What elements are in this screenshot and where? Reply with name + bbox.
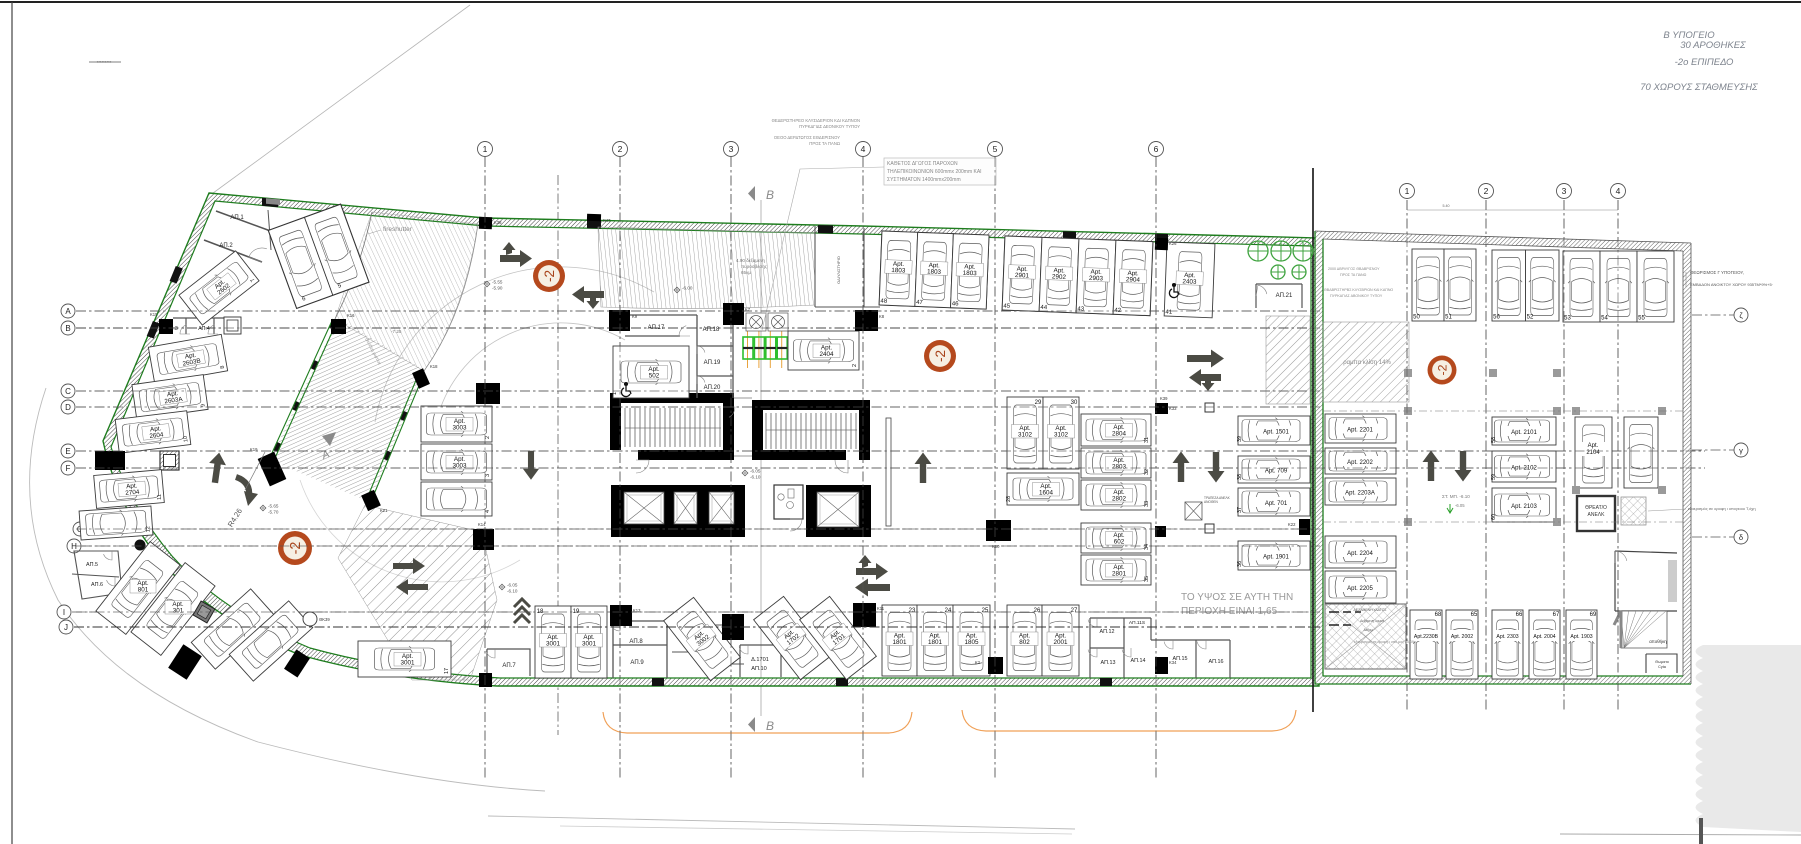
- svg-text:K21: K21: [380, 508, 388, 513]
- svg-text:-6.10: -6.10: [507, 589, 518, 594]
- svg-text:2001: 2001: [1053, 639, 1068, 646]
- svg-text:εξαερισμός σε οροφη ι υπο,μος: εξαερισμός σε οροφη ι υπο,μος 35,69: [1354, 640, 1414, 644]
- svg-text:39: 39: [1237, 436, 1243, 442]
- svg-text:ΔΕΞΑΜΕΝΗ ΥΔΑΤΟΣ: ΔΕΞΑΜΕΝΗ ΥΔΑΤΟΣ: [1354, 608, 1387, 612]
- svg-text:Δεξαμ: Δεξαμ: [1363, 628, 1372, 632]
- svg-text:δ: δ: [1739, 533, 1743, 542]
- svg-text:38: 38: [1237, 474, 1243, 480]
- svg-text:47: 47: [916, 300, 924, 306]
- svg-text:-2: -2: [288, 542, 304, 555]
- svg-text:Apt. 2202: Apt. 2202: [1347, 460, 1373, 466]
- svg-text:ΑΠ.13: ΑΠ.13: [1101, 660, 1116, 666]
- svg-text:2: 2: [852, 364, 858, 367]
- svg-text:58: 58: [1491, 437, 1497, 443]
- svg-text:2801: 2801: [1112, 571, 1127, 578]
- svg-text:2904: 2904: [1126, 276, 1141, 284]
- svg-text:48: 48: [880, 298, 888, 304]
- svg-text:K9: K9: [632, 314, 638, 319]
- svg-text:ΑΠ.1: ΑΠ.1: [230, 215, 244, 221]
- svg-text:60: 60: [1491, 514, 1497, 520]
- svg-text:B: B: [766, 719, 774, 733]
- svg-text:ΘΕΩΡΙΣΜΟΣ Γ ΥΠΟΓΕΙΟΥ,: ΘΕΩΡΙΣΜΟΣ Γ ΥΠΟΓΕΙΟΥ,: [1690, 270, 1744, 275]
- svg-text:K2: K2: [975, 660, 981, 665]
- svg-text:3102: 3102: [1054, 432, 1069, 439]
- svg-text:-2ο ΕΠΙΠΕΔΟ: -2ο ΕΠΙΠΕΔΟ: [1675, 57, 1734, 68]
- svg-text:Apt. 709: Apt. 709: [1265, 469, 1288, 475]
- svg-text:36: 36: [1237, 561, 1243, 567]
- svg-text:Apt. 1901: Apt. 1901: [1263, 555, 1289, 561]
- svg-text:Apt. 701: Apt. 701: [1265, 501, 1288, 507]
- svg-text:1: 1: [1405, 186, 1410, 196]
- svg-text:301: 301: [173, 608, 184, 615]
- svg-text:4: 4: [485, 510, 491, 513]
- svg-text:10: 10: [183, 436, 190, 443]
- svg-text:2000 ΔΒΡΛΥΓΟΣ ΘΒΔΒΡΙΣΝΟΥ: 2000 ΔΒΡΛΥΓΟΣ ΘΒΔΒΡΙΣΝΟΥ: [1328, 267, 1380, 271]
- svg-text:ΠΕΡΙΟΧΗ ΕΙΝΑΙ 1,65: ΠΕΡΙΟΧΗ ΕΙΝΑΙ 1,65: [1181, 606, 1278, 617]
- svg-text:2403: 2403: [1182, 278, 1197, 286]
- svg-text:1: 1: [612, 392, 618, 395]
- svg-text:2802: 2802: [1112, 496, 1127, 503]
- svg-text:E: E: [65, 447, 70, 456]
- svg-text:C: C: [65, 387, 71, 396]
- svg-text:6: 6: [1154, 144, 1159, 154]
- svg-text:53: 53: [1564, 316, 1571, 322]
- svg-text:K15: K15: [150, 312, 158, 317]
- svg-text:K34: K34: [1169, 660, 1177, 665]
- svg-text:Apt. 2205: Apt. 2205: [1347, 586, 1373, 592]
- svg-text:3003: 3003: [452, 463, 467, 470]
- svg-text:ΘΒΔΒΡΙΣΤΗΡΒΣ ΚΛΥΣΒΡΙΩΝ ΚΑΙ ΚΑΠ: ΘΒΔΒΡΙΣΤΗΡΒΣ ΚΛΥΣΒΡΙΩΝ ΚΑΙ ΚΑΠΝΟ: [1324, 288, 1393, 292]
- svg-text:30 ΑΡΟΘΗΚΕΣ: 30 ΑΡΟΘΗΚΕΣ: [1680, 40, 1746, 51]
- svg-text:D: D: [65, 403, 71, 412]
- svg-text:17: 17: [444, 668, 450, 674]
- svg-text:K47: K47: [603, 218, 611, 223]
- svg-text:K18: K18: [430, 364, 438, 369]
- svg-text:ΑΠ.9: ΑΠ.9: [630, 660, 644, 666]
- svg-text:44: 44: [1040, 305, 1048, 311]
- svg-text:-5.55: -5.55: [492, 280, 503, 285]
- svg-text:ΘΕΔΕΡΙΣΤΗΡΕΟ ΚΛΥΣΙΔΕΡΙΟΝ ΚΔΙ Κ: ΘΕΔΕΡΙΣΤΗΡΕΟ ΚΛΥΣΙΔΕΡΙΟΝ ΚΔΙ ΚΔΠΝΟΝ: [772, 118, 860, 123]
- svg-text:46: 46: [952, 301, 960, 307]
- svg-text:1: 1: [483, 144, 488, 154]
- svg-text:66: 66: [1516, 612, 1523, 618]
- svg-text:-2: -2: [1435, 364, 1449, 375]
- svg-text:Θωματο: Θωματο: [1655, 660, 1669, 664]
- svg-text:2404: 2404: [819, 351, 834, 358]
- svg-text:ΑΠ.8: ΑΠ.8: [629, 639, 643, 645]
- svg-text:30: 30: [1071, 400, 1078, 406]
- svg-text:51: 51: [1445, 315, 1452, 321]
- svg-text:Apt.: Apt.: [1588, 443, 1599, 449]
- svg-text:1801: 1801: [928, 639, 943, 646]
- svg-text:-5.70: -5.70: [268, 510, 279, 515]
- svg-text:24: 24: [945, 608, 952, 614]
- svg-text:ΑΠ.16: ΑΠ.16: [1209, 659, 1224, 665]
- svg-text:25: 25: [982, 608, 989, 614]
- svg-text:35: 35: [1144, 576, 1150, 582]
- svg-text:2902: 2902: [1052, 273, 1067, 281]
- svg-text:Apt. 2303: Apt. 2303: [1496, 634, 1518, 640]
- svg-text:B: B: [766, 188, 774, 202]
- svg-text:ΑΠ.6: ΑΠ.6: [91, 582, 103, 588]
- svg-text:ΑΠ.7: ΑΠ.7: [502, 663, 516, 669]
- svg-text:602: 602: [1114, 539, 1125, 546]
- svg-text:I: I: [63, 608, 65, 617]
- svg-text:ΟΔΙΥΛΙΣΤΗΡΙΟ: ΟΔΙΥΛΙΣΤΗΡΙΟ: [836, 256, 841, 284]
- svg-text:ΣΤ. ΜΠ. -6.10: ΣΤ. ΜΠ. -6.10: [1442, 494, 1470, 499]
- svg-text:23: 23: [909, 608, 916, 614]
- svg-text:A: A: [65, 307, 71, 316]
- svg-text:-2: -2: [933, 350, 948, 362]
- svg-text:3: 3: [485, 474, 491, 477]
- svg-text:*********: *********: [97, 60, 112, 65]
- svg-text:54: 54: [1601, 316, 1608, 322]
- svg-text:-2: -2: [542, 270, 557, 282]
- svg-text:26: 26: [1034, 608, 1041, 614]
- svg-text:1803: 1803: [891, 267, 906, 275]
- svg-text:Apt. 1501: Apt. 1501: [1263, 430, 1289, 436]
- svg-text:55: 55: [1638, 316, 1645, 322]
- svg-text:3001: 3001: [546, 641, 561, 648]
- svg-text:-6.05: -6.05: [750, 469, 761, 474]
- svg-text:ΑΠ.12: ΑΠ.12: [1100, 629, 1115, 635]
- svg-text:-7.25: -7.25: [391, 329, 402, 334]
- svg-text:Apt.2230Β: Apt.2230Β: [1414, 634, 1439, 640]
- svg-text:ΑΝΕΛΚ: ΑΝΕΛΚ: [1588, 512, 1606, 518]
- svg-text:52: 52: [1527, 315, 1534, 321]
- svg-text:fireshutter: fireshutter: [383, 226, 413, 233]
- svg-text:ΠΥΡΚΔΓΙΔΣ ΔΕΟΝΙΚΟΥ ΤΥΠΟΥ: ΠΥΡΚΔΓΙΔΣ ΔΕΟΝΙΚΟΥ ΤΥΠΟΥ: [799, 124, 860, 129]
- svg-text:1803: 1803: [963, 270, 978, 278]
- svg-text:43: 43: [1077, 306, 1085, 312]
- svg-text:ραμπα κλίση 14%: ραμπα κλίση 14%: [1343, 360, 1391, 366]
- svg-text:Δεξαμενη λυματ: Δεξαμενη λυματ: [1360, 619, 1385, 623]
- svg-text:γ: γ: [1739, 446, 1743, 455]
- svg-text:-6.05: -6.05: [1455, 503, 1465, 508]
- svg-text:K22: K22: [1288, 522, 1296, 527]
- svg-text:3: 3: [1562, 186, 1567, 196]
- svg-text:J: J: [64, 623, 68, 632]
- svg-text:H: H: [71, 542, 77, 551]
- svg-text:34: 34: [1144, 544, 1150, 550]
- svg-text:ΟΕΟΟ ΔΕΡΔΤΩΓΟΣ ΕΘΔΕΡΙΣΝΟΥ: ΟΕΟΟ ΔΕΡΔΤΩΓΟΣ ΕΘΔΕΡΙΣΝΟΥ: [774, 135, 840, 140]
- svg-text:56: 56: [1493, 315, 1500, 321]
- svg-text:Apt. 2101: Apt. 2101: [1511, 430, 1537, 436]
- svg-text:-5.65: -5.65: [268, 504, 279, 509]
- svg-text:Apt. 2004: Apt. 2004: [1533, 634, 1555, 640]
- svg-text:28: 28: [1006, 496, 1012, 502]
- svg-text:50: 50: [1413, 315, 1420, 321]
- svg-text:37: 37: [1237, 507, 1243, 513]
- svg-text:ΘΡΕΑΤ/Ο: ΘΡΕΑΤ/Ο: [1585, 505, 1607, 511]
- svg-text:1805: 1805: [964, 639, 979, 646]
- svg-text:2903: 2903: [1089, 275, 1104, 283]
- svg-text:πυροσβεσης: πυροσβεσης: [741, 264, 768, 269]
- svg-text:Apt. 2201: Apt. 2201: [1347, 428, 1373, 434]
- svg-text:Apt. 2204: Apt. 2204: [1347, 551, 1373, 557]
- svg-text:Cyta: Cyta: [1658, 665, 1667, 669]
- svg-text:3001: 3001: [400, 660, 415, 667]
- svg-text:K11: K11: [877, 606, 885, 611]
- svg-text:3003: 3003: [452, 425, 467, 432]
- svg-text:ΤΗΛΕΠΙΚΟΙΝΩΝΙΩΝ 600mmx 200mm Κ: ΤΗΛΕΠΙΚΟΙΝΩΝΙΩΝ 600mmx 200mm ΚΑΙ: [887, 169, 982, 175]
- svg-text:69: 69: [1590, 612, 1597, 618]
- svg-text:K8: K8: [879, 314, 885, 319]
- svg-text:5.40: 5.40: [1443, 204, 1450, 208]
- svg-text:ΣΥΣΤΗΜΑΤΩΝ 1400mmx200mm: ΣΥΣΤΗΜΑΤΩΝ 1400mmx200mm: [887, 177, 961, 183]
- svg-text:2804: 2804: [1112, 431, 1127, 438]
- svg-text:ΠΡΟΣ ΤΑ ΠΑΝΩ: ΠΡΟΣ ΤΑ ΠΑΝΩ: [809, 141, 840, 146]
- svg-text:ΑΠ.2: ΑΠ.2: [219, 243, 233, 249]
- svg-text:ΚΑΘΕΤΟΣ ΔΓΩΓΟΣ ΠΑΡΟΧΩΝ: ΚΑΘΕΤΟΣ ΔΓΩΓΟΣ ΠΑΡΟΧΩΝ: [887, 161, 958, 167]
- svg-text:Apt. 2102: Apt. 2102: [1511, 466, 1537, 472]
- svg-text:4: 4: [1616, 186, 1621, 196]
- svg-text:ΘK39: ΘK39: [319, 617, 330, 622]
- svg-text:ΤΟ ΥΨΟΣ ΣΕ ΑΥΤΗ ΤΗΝ: ΤΟ ΥΨΟΣ ΣΕ ΑΥΤΗ ΤΗΝ: [1181, 592, 1293, 603]
- svg-text:K16: K16: [347, 313, 355, 318]
- svg-text:32: 32: [1144, 469, 1150, 475]
- svg-text:ΕΜΒΑΔΟΝ ΑΝΟΙΚΤΟΥ ΧΩΡΟΥ 935ΤΜ*9: ΕΜΒΑΔΟΝ ΑΝΟΙΚΤΟΥ ΧΩΡΟΥ 935ΤΜ*9%+5·: [1690, 282, 1773, 287]
- svg-text:31: 31: [1144, 437, 1150, 443]
- svg-text:11: 11: [157, 494, 163, 500]
- svg-text:ΠΥΡΚΑΓΙΑΣ ΑΒΟΝΙΚΟΥ ΤΥΠΟΥ: ΠΥΡΚΑΓΙΑΣ ΑΒΟΝΙΚΟΥ ΤΥΠΟΥ: [1330, 294, 1383, 298]
- svg-text:67: 67: [1553, 612, 1560, 618]
- svg-text:2: 2: [618, 144, 623, 154]
- svg-text:ΑΠ.21: ΑΠ.21: [1276, 293, 1293, 299]
- svg-text:2901: 2901: [1015, 272, 1030, 280]
- svg-text:ΑΝΟΘΕΝ: ΑΝΟΘΕΝ: [1204, 500, 1219, 504]
- svg-text:ΑΠ.10: ΑΠ.10: [751, 666, 767, 672]
- svg-text:27: 27: [1071, 608, 1078, 614]
- svg-text:5: 5: [993, 144, 998, 154]
- svg-text:εξαερισμός σε οροφη ι υπογειου: εξαερισμός σε οροφη ι υπογειου Τ,όχη: [1688, 506, 1756, 511]
- svg-text:Apt. 1903: Apt. 1903: [1570, 634, 1592, 640]
- svg-text:K26: K26: [1169, 241, 1177, 246]
- svg-text:-6.00: -6.00: [682, 286, 693, 291]
- svg-text:αποθήκη: αποθήκη: [1649, 639, 1667, 644]
- svg-text:2803: 2803: [1112, 464, 1127, 471]
- svg-text:2704: 2704: [125, 489, 140, 497]
- svg-text:1803: 1803: [927, 268, 942, 276]
- svg-text:ΑΠ.14: ΑΠ.14: [1131, 658, 1146, 664]
- svg-text:1604: 1604: [1039, 490, 1054, 497]
- svg-text:Δ.1701: Δ.1701: [751, 657, 769, 663]
- svg-text:3102: 3102: [1018, 432, 1033, 439]
- svg-text:65κμ: 65κμ: [741, 270, 751, 275]
- svg-text:Apt. 2002: Apt. 2002: [1451, 634, 1473, 640]
- svg-text:801: 801: [138, 587, 149, 594]
- svg-text:802: 802: [1019, 639, 1030, 646]
- svg-text:2: 2: [485, 436, 491, 439]
- svg-text:65: 65: [1471, 612, 1478, 618]
- svg-text:Apt. 2203Α: Apt. 2203Α: [1345, 491, 1375, 497]
- svg-text:F: F: [66, 464, 71, 473]
- svg-text:33: 33: [1144, 501, 1150, 507]
- svg-text:68: 68: [1435, 612, 1442, 618]
- svg-text:59: 59: [1491, 474, 1497, 480]
- svg-text:-6.10: -6.10: [750, 475, 761, 480]
- svg-text:4: 4: [861, 144, 866, 154]
- svg-text:K39: K39: [1160, 396, 1168, 401]
- svg-text:K10: K10: [992, 544, 1000, 549]
- svg-text:-6.05: -6.05: [507, 583, 518, 588]
- svg-text:70 ΧΩΡΟΥΣ ΣΤΑΘΜΕΥΣΗΣ: 70 ΧΩΡΟΥΣ ΣΤΑΘΜΕΥΣΗΣ: [1640, 82, 1758, 93]
- svg-text:Apt. 2103: Apt. 2103: [1511, 504, 1537, 510]
- svg-text:K38: K38: [494, 220, 502, 225]
- svg-text:45: 45: [1003, 303, 1011, 309]
- svg-text:41: 41: [1165, 309, 1173, 315]
- svg-text:502: 502: [649, 373, 660, 380]
- svg-text:ΑΠ.19: ΑΠ.19: [704, 360, 721, 366]
- svg-text:B: B: [65, 324, 70, 333]
- svg-text:ΠΡΟΣ ΤΑ ΠΑΝΩ: ΠΡΟΣ ΤΑ ΠΑΝΩ: [1340, 273, 1367, 277]
- svg-text:ΑΠ.5: ΑΠ.5: [86, 562, 98, 568]
- svg-text:ΑΠ.11S: ΑΠ.11S: [1129, 620, 1145, 626]
- svg-text:ΑΠ.20: ΑΠ.20: [704, 385, 721, 391]
- svg-text:3001: 3001: [582, 641, 597, 648]
- svg-text:-5.90: -5.90: [492, 286, 503, 291]
- svg-text:3: 3: [729, 144, 734, 154]
- svg-text:1801: 1801: [892, 639, 907, 646]
- svg-text:2: 2: [1484, 186, 1489, 196]
- svg-text:29: 29: [1035, 400, 1042, 406]
